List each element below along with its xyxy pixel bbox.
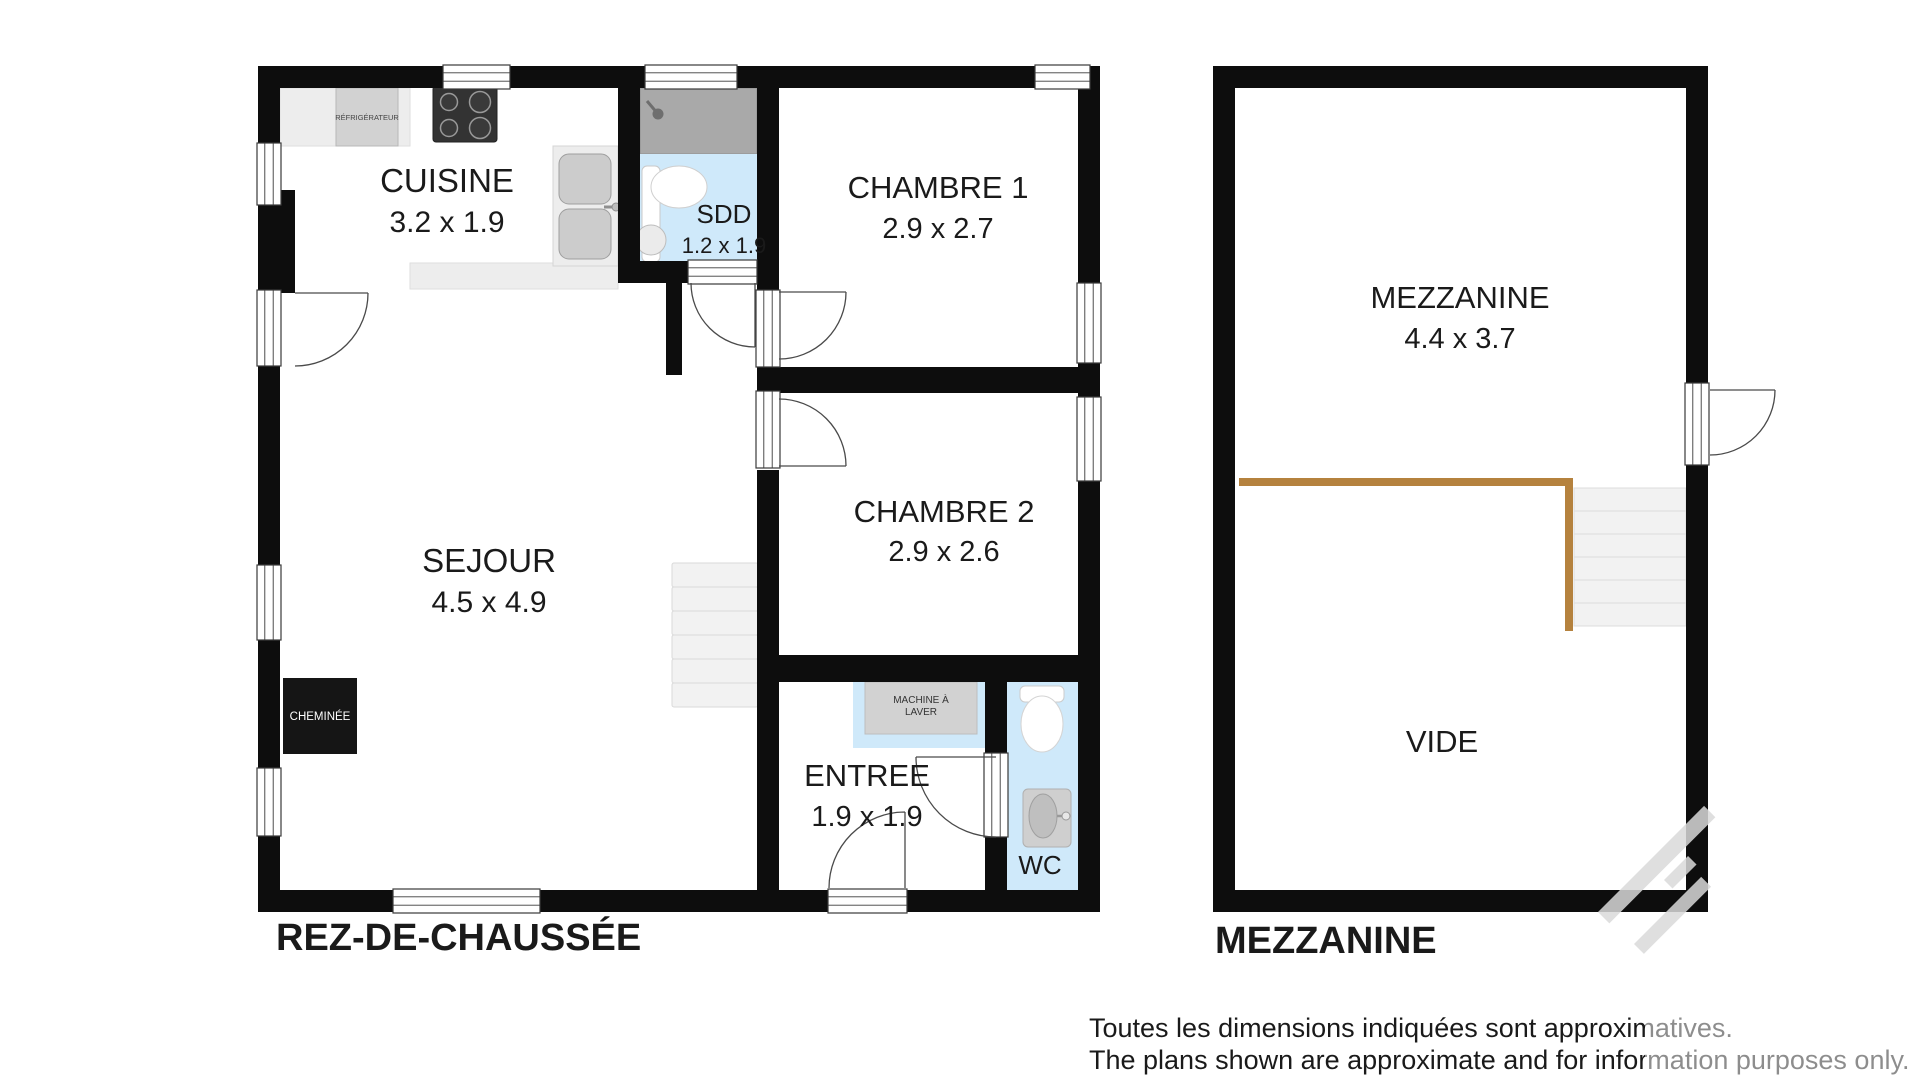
room-label-sejour: SEJOUR <box>422 542 556 579</box>
wall-sdd-bottom <box>618 261 688 283</box>
window <box>645 65 737 89</box>
door-swing <box>1710 390 1775 455</box>
room-dims-chambre1: 2.9 x 2.7 <box>882 213 993 245</box>
wall-chambre2-entree <box>757 655 1100 682</box>
door-swing <box>779 292 846 359</box>
door-swing <box>295 293 368 366</box>
window <box>257 143 281 205</box>
room-label-entree: ENTREE <box>804 758 930 793</box>
wc-sink-icon <box>1023 789 1071 847</box>
room-label-vide: VIDE <box>1406 724 1478 759</box>
washer-label-line2: LAVER <box>905 707 937 718</box>
room-label-sdd: SDD <box>697 199 752 229</box>
window <box>393 889 540 913</box>
washer-label-line1: MACHINE À <box>893 693 949 706</box>
window <box>443 65 510 89</box>
door-frame <box>1685 383 1709 465</box>
window <box>1077 397 1101 481</box>
room-dims-sejour: 4.5 x 4.9 <box>431 586 546 619</box>
wall-outer-bottom <box>258 890 1100 912</box>
watermark <box>1598 806 1920 1080</box>
disclaimer-line1: Toutes les dimensions indiquées sont app… <box>1089 1013 1733 1043</box>
wall-corridor-stub <box>666 283 682 375</box>
room-dims-mezzanine: 4.4 x 3.7 <box>1404 323 1515 355</box>
wall-sdd-left <box>618 88 640 261</box>
staircase <box>672 563 758 707</box>
room-label-wc: WC <box>1018 850 1061 880</box>
door-swing <box>779 399 846 466</box>
room-dims-chambre2: 2.9 x 2.6 <box>888 536 999 568</box>
kitchen-counter-peninsula <box>410 263 618 289</box>
watermark-overlay <box>1645 1008 1920 1080</box>
room-dims-entree: 1.9 x 1.9 <box>811 801 922 833</box>
mezzanine-railing <box>1239 482 1569 631</box>
door-frame <box>828 889 907 913</box>
window <box>1035 65 1090 89</box>
fridge-label: RÉFRIGÉRATEUR <box>335 113 399 122</box>
shower-tray <box>640 88 757 154</box>
floor-title-mezzanine: MEZZANINE <box>1215 920 1437 962</box>
room-dims-sdd: 1.2 x 1.9 <box>682 233 766 258</box>
room-label-chambre1: CHAMBRE 1 <box>848 170 1029 205</box>
wall-left-jog <box>280 190 295 293</box>
wall-chambre1-chambre2 <box>757 367 1100 393</box>
floor-plan-canvas: CUISINE 3.2 x 1.9 SDD 1.2 x 1.9 CHAMBRE … <box>0 0 1920 1080</box>
window <box>1077 283 1101 363</box>
door-frame <box>984 753 1008 837</box>
door-swing <box>691 283 755 347</box>
door-frame <box>756 290 780 367</box>
mezzanine-stairs <box>1574 488 1686 626</box>
floor-title-ground: REZ-DE-CHAUSSÉE <box>276 915 641 959</box>
window <box>257 565 281 640</box>
wall-outer-top <box>1213 66 1708 88</box>
room-dims-cuisine: 3.2 x 1.9 <box>389 206 504 239</box>
door-frame <box>688 260 757 284</box>
fireplace-label: CHEMINÉE <box>290 710 351 723</box>
wall-outer-right <box>1686 66 1708 912</box>
wall-outer-right <box>1078 66 1100 912</box>
window <box>257 768 281 836</box>
wall-outer-left <box>1213 66 1235 912</box>
mezzanine-plan <box>1213 66 1775 912</box>
room-label-mezzanine: MEZZANINE <box>1370 280 1549 315</box>
room-label-chambre2: CHAMBRE 2 <box>854 494 1035 529</box>
door-frame <box>257 290 281 366</box>
door-frame <box>756 391 780 468</box>
sdd-sink-icon <box>636 225 666 255</box>
wc-toilet-icon <box>1020 686 1064 752</box>
room-label-cuisine: CUISINE <box>380 162 514 199</box>
